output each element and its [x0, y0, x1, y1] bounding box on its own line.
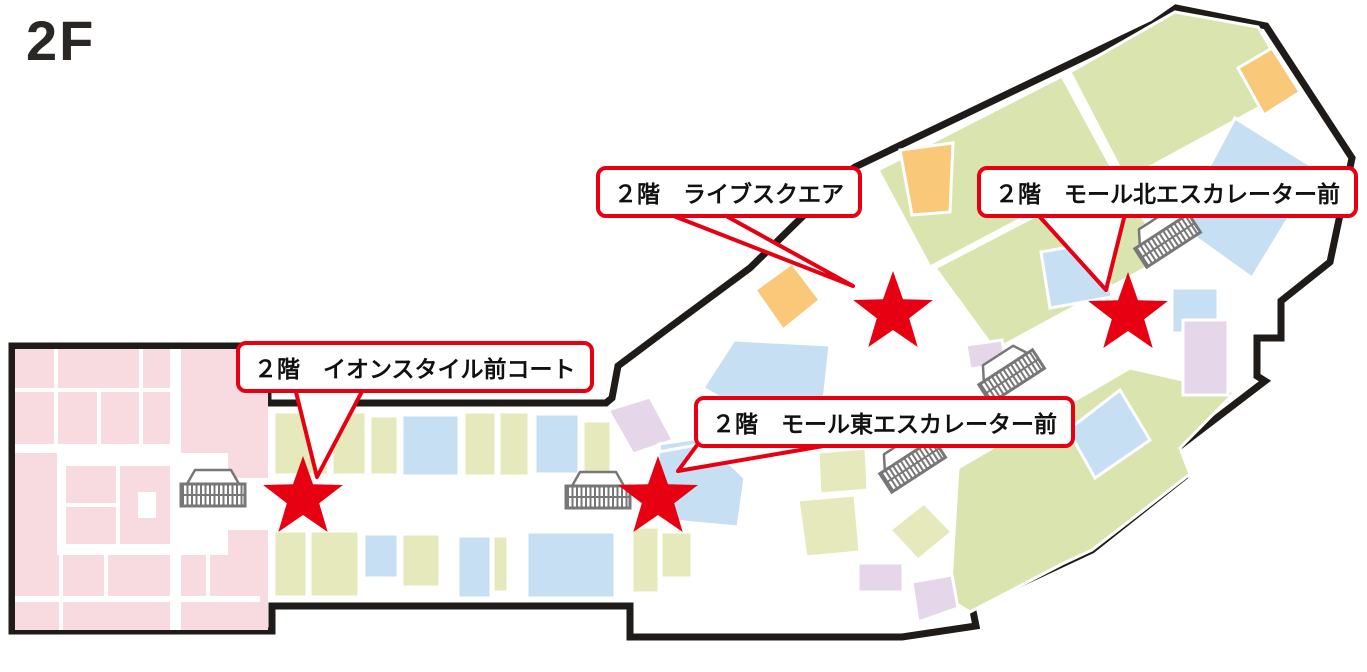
callout-live-square: ２階 ライブスクエア — [596, 166, 862, 218]
floor-title: 2F — [26, 8, 95, 73]
shop-block — [370, 416, 398, 475]
escalator-icon — [566, 472, 630, 508]
department-room — [66, 466, 116, 503]
shop-block — [661, 532, 692, 578]
shop-block — [402, 415, 459, 476]
department-room — [228, 530, 268, 555]
callout-mall-east-escalator: ２階 モール東エスカレーター前 — [694, 396, 1075, 448]
shop-block — [798, 495, 860, 557]
callout-aeon-style-court-label: ２階 イオンスタイル前コート — [254, 356, 576, 382]
shop-block — [274, 531, 307, 597]
callout-mall-north-escalator: ２階 モール北エスカレーター前 — [977, 166, 1358, 218]
shop-block — [464, 412, 496, 476]
callout-aeon-style-court: ２階 イオンスタイル前コート — [236, 341, 594, 393]
shop-block — [458, 536, 491, 598]
shop-block — [499, 412, 529, 476]
shop-block — [527, 532, 615, 598]
shop-block — [310, 531, 359, 597]
shop-block — [818, 448, 868, 494]
escalator-icon — [181, 470, 245, 506]
shop-block — [364, 534, 398, 578]
shop-block — [535, 414, 579, 474]
mall-map-svg — [0, 0, 1367, 672]
callout-live-square-label: ２階 ライブスクエア — [614, 181, 844, 207]
callout-mall-east-escalator-label: ２階 モール東エスカレーター前 — [712, 411, 1057, 437]
shop-block — [1183, 320, 1228, 395]
department-room — [66, 507, 116, 544]
shop-block — [632, 527, 659, 593]
callout-mall-north-escalator-label: ２階 モール北エスカレーター前 — [995, 181, 1340, 207]
department-room-gap — [138, 492, 156, 518]
shop-block — [583, 421, 611, 473]
shop-block — [858, 563, 903, 592]
shop-block — [402, 534, 440, 587]
shop-block — [493, 536, 508, 592]
floor-map-2f: 2F ２階 ライブスクエア ２階 モール北エスカレーター前 ２階 イオンスタイル… — [0, 0, 1367, 672]
